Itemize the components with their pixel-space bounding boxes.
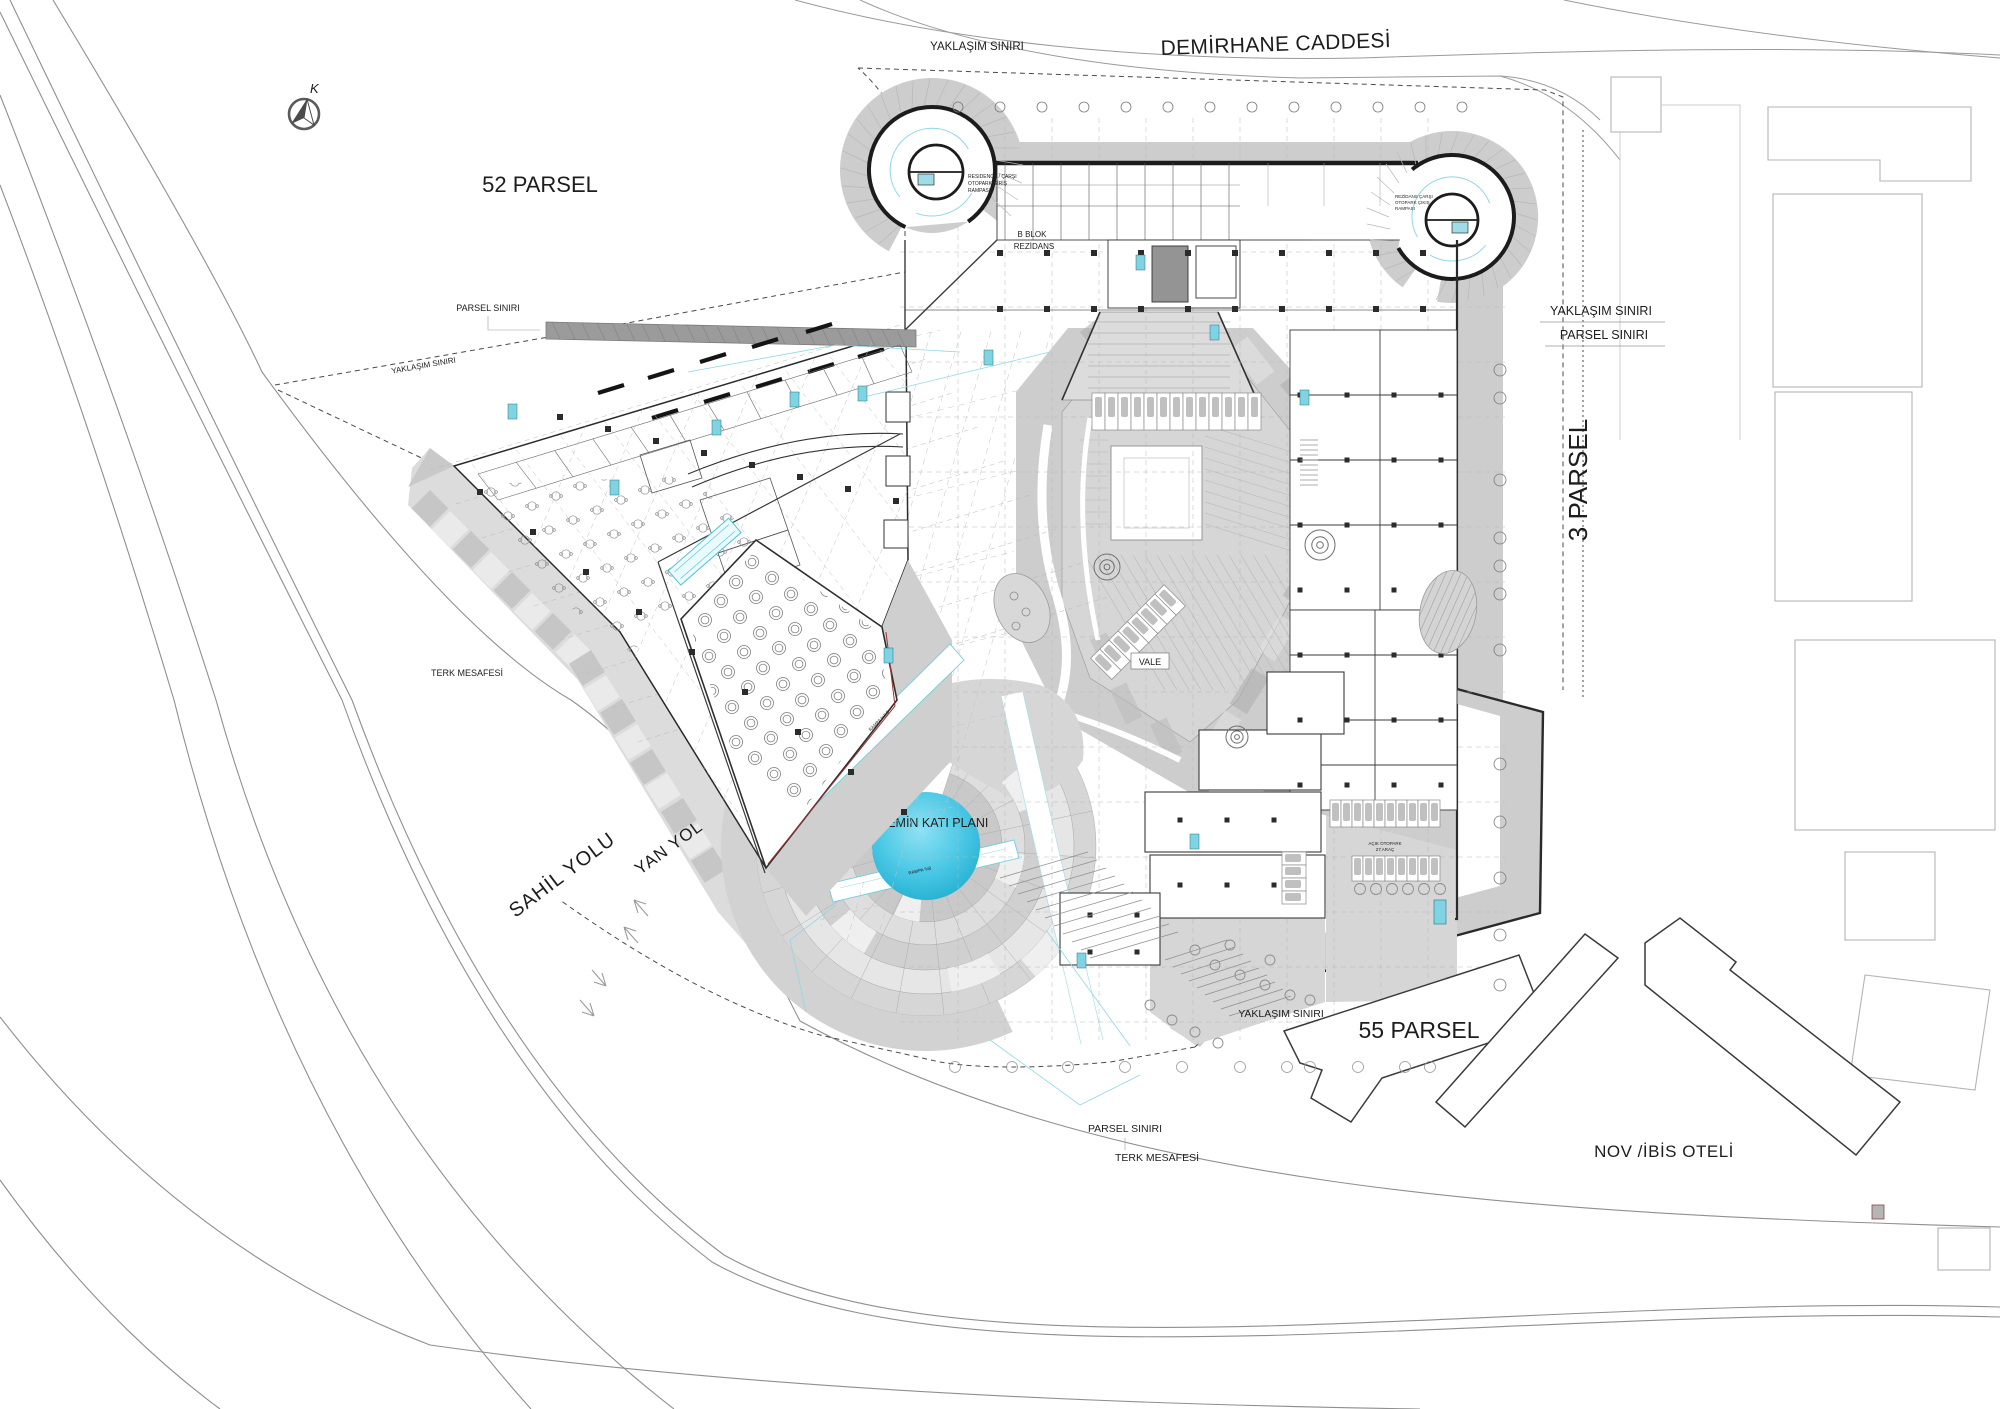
- svg-text:REZİDANS: REZİDANS: [1014, 242, 1054, 251]
- svg-text:PARSEL SINIRI: PARSEL SINIRI: [456, 303, 520, 313]
- svg-text:TERK MESAFESİ: TERK MESAFESİ: [1115, 1151, 1199, 1164]
- svg-text:NOV /İBİS OTELİ: NOV /İBİS OTELİ: [1594, 1142, 1734, 1161]
- svg-text:RAMPASI: RAMPASI: [968, 188, 990, 194]
- svg-text:55 PARSEL: 55 PARSEL: [1358, 1017, 1479, 1043]
- svg-text:AÇIK OTOPARK: AÇIK OTOPARK: [1368, 841, 1401, 846]
- svg-text:K: K: [310, 81, 320, 96]
- svg-text:YAKLAŞIM SINIRI: YAKLAŞIM SINIRI: [1238, 1008, 1324, 1020]
- svg-text:3 PARSEL: 3 PARSEL: [1563, 419, 1593, 541]
- svg-text:27 ARAÇ: 27 ARAÇ: [1376, 847, 1395, 852]
- svg-text:RAMPASI: RAMPASI: [1395, 206, 1415, 211]
- svg-text:YAKLAŞIM SINIRI: YAKLAŞIM SINIRI: [930, 41, 1024, 53]
- svg-text:YAKLAŞIM SINIRI: YAKLAŞIM SINIRI: [1550, 304, 1652, 318]
- svg-text:RESIDENCE / ÇARŞI: RESIDENCE / ÇARŞI: [968, 174, 1017, 180]
- svg-text:OTOPARK ÇIKIŞ: OTOPARK ÇIKIŞ: [1395, 200, 1430, 205]
- svg-text:REZİDANS ÇARŞI: REZİDANS ÇARŞI: [1395, 193, 1433, 199]
- svg-text:VALE: VALE: [1139, 657, 1161, 667]
- svg-text:B BLOK: B BLOK: [1018, 230, 1048, 239]
- svg-text:PARSEL SINIRI: PARSEL SINIRI: [1560, 328, 1648, 342]
- svg-text:PARSEL SINIRI: PARSEL SINIRI: [1088, 1123, 1162, 1135]
- svg-text:OTOPARK GİRİŞ: OTOPARK GİRİŞ: [968, 180, 1008, 187]
- svg-text:52 PARSEL: 52 PARSEL: [482, 172, 598, 197]
- svg-text:TERK MESAFESİ: TERK MESAFESİ: [431, 668, 503, 678]
